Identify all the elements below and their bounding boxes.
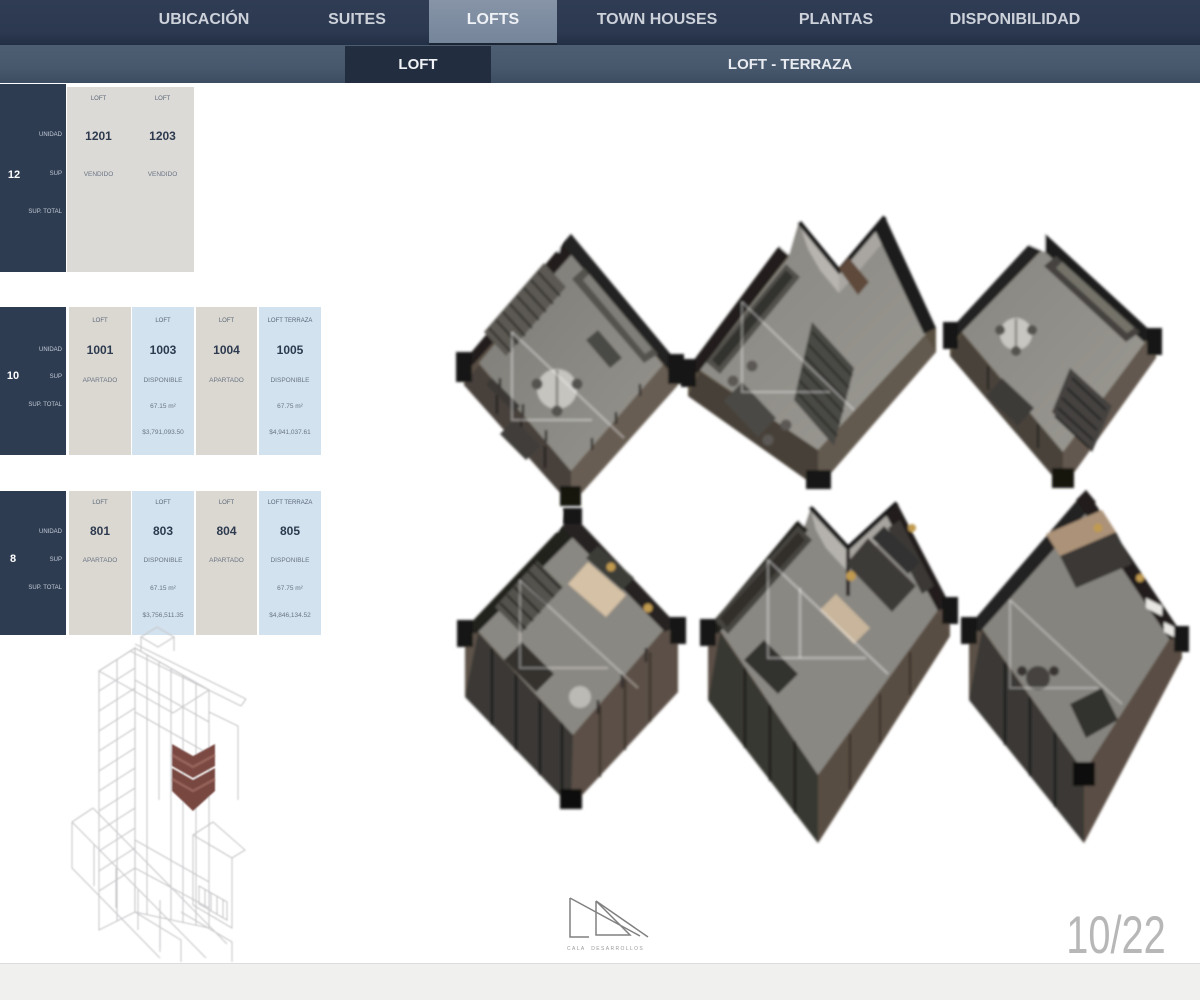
svg-text:CALA DESARROLLOS: CALA DESARROLLOS [567, 946, 644, 952]
